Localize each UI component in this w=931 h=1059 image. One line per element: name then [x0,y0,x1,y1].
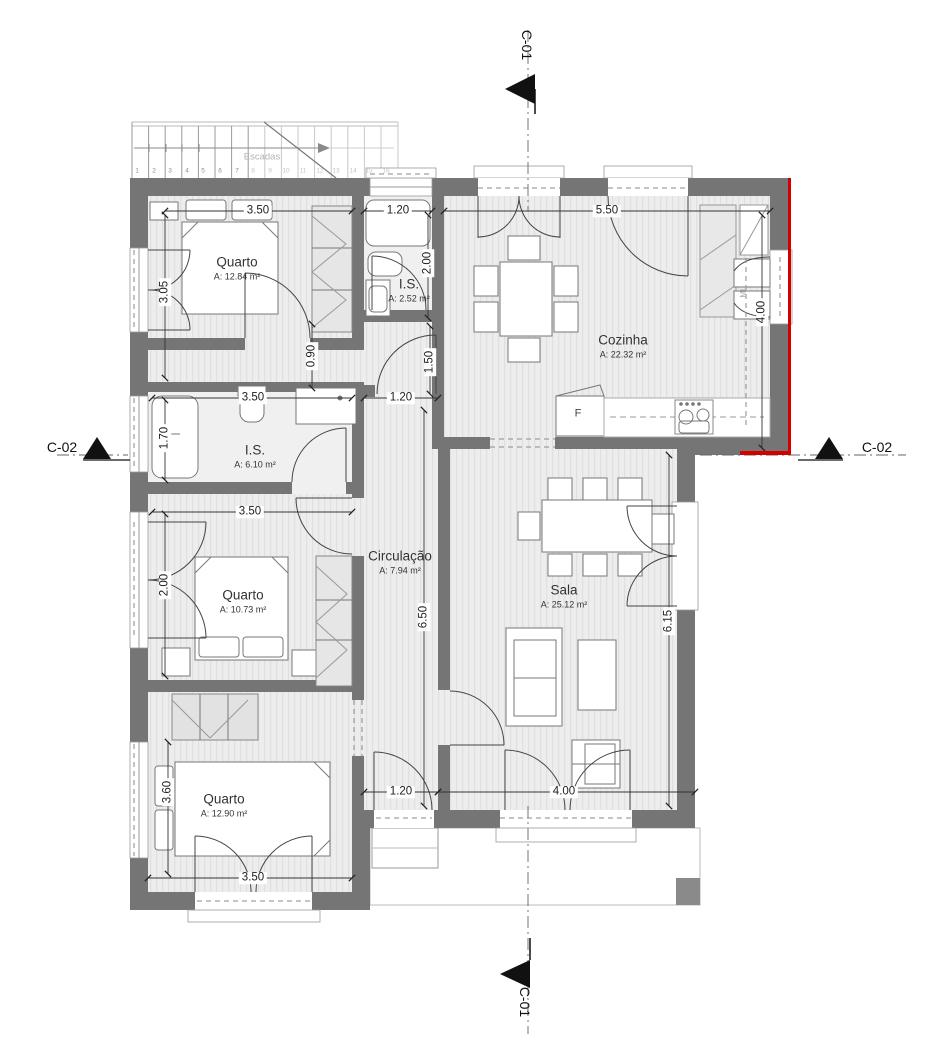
door-leaf [734,259,770,287]
dim-is2-width: 3.50 [239,392,267,404]
door-frame-kitchen-ne [604,166,692,178]
room-label-is1: I.S. A: 2.52 m² [388,277,430,304]
door-sill-sala [496,828,636,842]
section-arrow-c01-bottom [500,960,530,988]
room-name: Quarto [220,588,267,603]
nightstand [162,648,190,676]
dim-quarto1-height: 3.05 [159,278,171,306]
dim-quarto1-width: 3.50 [244,205,272,217]
kitchen-counter [604,398,770,437]
room-label-sala: Sala A: 25.12 m² [541,583,588,610]
stair-number: 3 [168,168,172,175]
door-frame-kitchen-nw [474,166,564,178]
stair-number: 11 [300,168,307,175]
stair-number: 6 [218,168,222,175]
bed-quarto3 [175,762,330,856]
dim-hall-gap: 0.90 [306,342,318,370]
dim-is1-height: 2.00 [422,249,434,277]
stair-number: 7 [235,168,239,175]
floor-corridor [148,350,364,382]
dim-cozinha-height: 4.00 [756,298,768,326]
stair-number: 5 [201,168,205,175]
room-label-quarto2: Quarto A: 10.73 m² [220,588,267,615]
room-area: A: 7.94 m² [368,566,432,576]
stairs-direction-arrow [318,143,330,153]
section-label-c01-bottom: C-01 [518,987,532,1017]
stair-number: 10 [282,168,289,175]
door-sill-quarto3 [188,910,320,922]
sala-table [542,500,652,552]
stair-number: 13 [332,168,339,175]
wardrobe-quarto3 [172,694,258,740]
room-area: A: 22.32 m² [598,350,648,360]
room-name: Quarto [214,255,261,270]
room-label-quarto3: Quarto A: 12.90 m² [201,792,248,819]
side-table [578,640,616,710]
dim-quarto3-width: 3.50 [239,872,267,884]
stair-number: 12 [316,168,323,175]
washer-is1 [366,280,390,316]
pillow [186,200,226,220]
room-name: Cozinha [598,333,648,348]
dim-cozinha-width: 5.50 [593,205,621,217]
section-arrow-c01-top [505,74,535,104]
room-name: I.S. [234,443,276,458]
floor-plan-drawing [0,0,931,1059]
terrace-pillar [676,878,700,905]
dim-quarto3-height: 3.60 [162,778,174,806]
dim-circulacao-height: 6.50 [418,603,430,631]
room-name: Quarto [201,792,248,807]
section-arrow-c02-left [83,437,111,459]
wardrobe-quarto2 [316,556,352,686]
dim-hall-opening: 1.50 [424,348,436,376]
pillow [243,637,283,657]
stair-number: 15 [365,168,372,175]
room-label-circulacao: Circulação A: 7.94 m² [368,549,432,576]
cabinet-label: ML [740,286,748,297]
sofa [506,628,562,726]
stair-number: 8 [251,168,255,175]
room-area: A: 6.10 m² [234,460,276,470]
dim-exit-door: 1.20 [387,786,415,798]
stair-number: 2 [152,168,156,175]
kitchen-table [500,262,552,336]
room-name: Circulação [368,549,432,564]
room-name: Sala [541,583,588,598]
stair-number: 9 [268,168,272,175]
dim-is1-width: 1.20 [384,205,412,217]
wardrobe-quarto1 [312,206,352,332]
vanity-is2 [296,388,356,424]
section-label-c02-right: C-02 [862,440,892,454]
dim-hall-door: 1.20 [387,392,415,404]
stair-number: 4 [185,168,189,175]
pillow [155,810,173,850]
room-name: I.S. [388,277,430,292]
room-area: A: 2.52 m² [388,294,430,304]
section-label-c02-left: C-02 [47,440,77,454]
floor-plan-canvas: C-01 C-01 C-02 C-02 Quarto A: 12.84 m² I… [0,0,931,1059]
section-label-c01-top: C-01 [520,30,534,60]
room-area: A: 12.84 m² [214,272,261,282]
dim-sala-width: 4.00 [550,786,578,798]
dim-quarto2-width: 3.50 [236,506,264,518]
stairs-label: Escadas [244,152,280,162]
dim-sala-height: 6.15 [663,607,675,635]
room-area: A: 25.12 m² [541,600,588,610]
fridge-label: F [575,409,582,420]
pillow [199,637,239,657]
stair-number: 14 [349,168,356,175]
section-arrow-c02-right [815,437,843,459]
room-area: A: 12.90 m² [201,809,248,819]
tv-unit [572,740,620,788]
dim-is2-height: 1.70 [159,424,171,452]
room-area: A: 10.73 m² [220,605,267,615]
room-label-quarto1: Quarto A: 12.84 m² [214,255,261,282]
stair-number: 16 [382,168,389,175]
stair-number: 1 [135,168,139,175]
room-label-cozinha: Cozinha A: 22.32 m² [598,333,648,360]
room-label-is2: I.S. A: 6.10 m² [234,443,276,470]
dim-quarto2-height: 2.00 [159,571,171,599]
nightstand [292,650,316,676]
